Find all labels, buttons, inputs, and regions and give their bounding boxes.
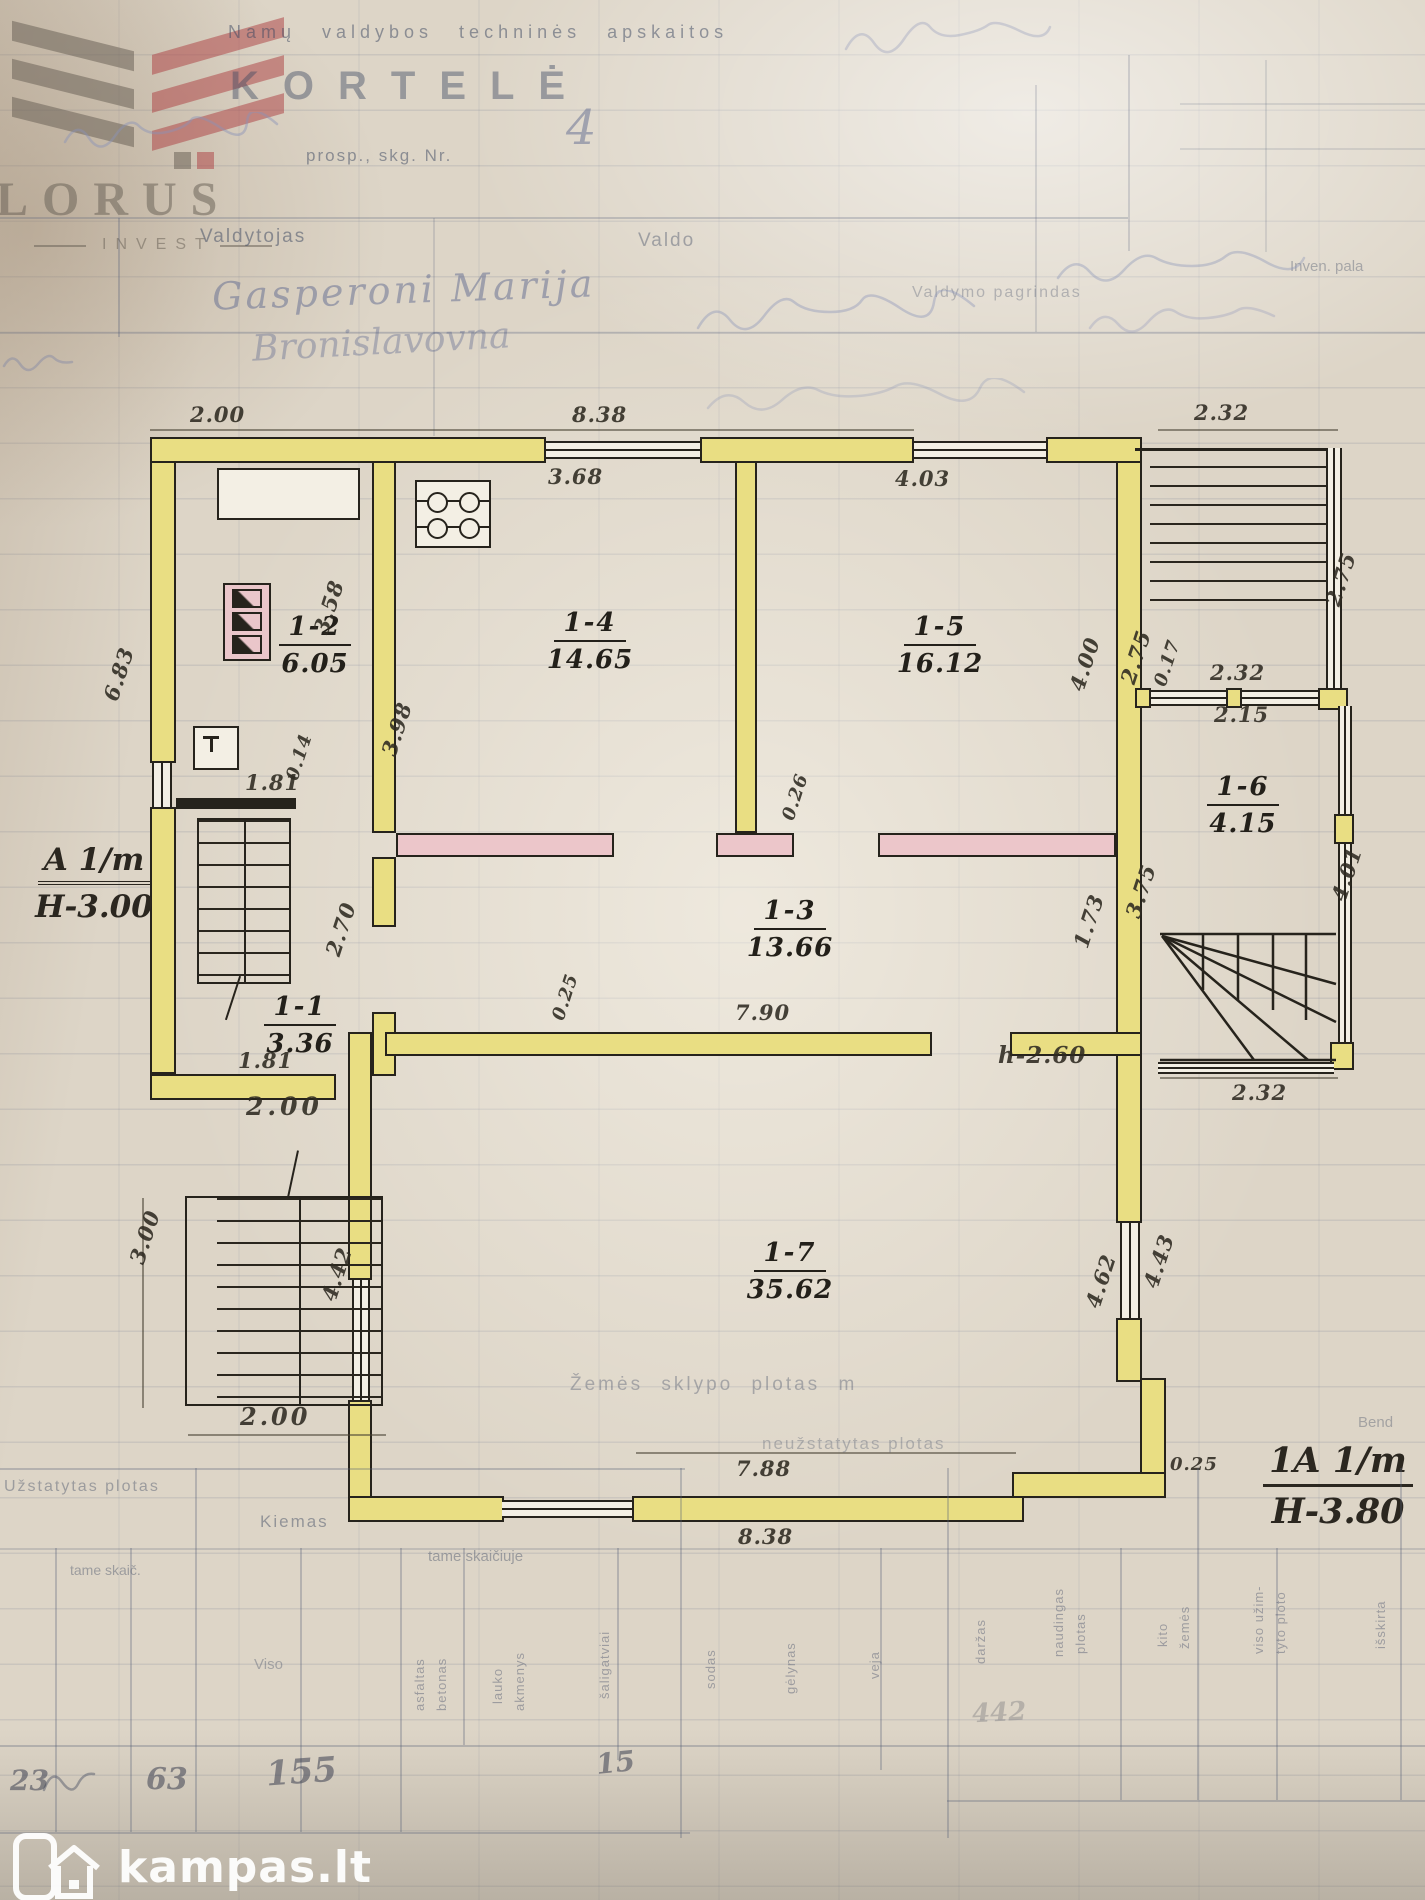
room-area: 6.05 (270, 646, 360, 679)
form-line (433, 218, 435, 436)
wall (1046, 437, 1142, 463)
dim-label: 2.32 (1194, 400, 1249, 425)
room-label-1-6: 1-6 4.15 (1195, 772, 1291, 839)
plot-area-label: Žemės sklypo plotas m (570, 1374, 857, 1396)
tame-skaiciuje-label: tame skaičiuje (428, 1548, 523, 1565)
table-line (680, 1468, 682, 1838)
table-col-label: viso užim- (1251, 1585, 1266, 1654)
room-id: 1-6 (1207, 772, 1280, 806)
form-line (1180, 103, 1425, 105)
table-line (0, 1745, 1425, 1747)
wall (632, 1496, 1024, 1522)
table-line (0, 1468, 685, 1470)
room-label-1-5: 1-5 16.12 (895, 612, 985, 679)
room-id: 1-3 (754, 896, 827, 930)
table-col-label: betonas (434, 1658, 449, 1711)
room-id: 1-7 (754, 1238, 827, 1272)
dim-label: 0.25 (1170, 1454, 1218, 1475)
form-line (1180, 148, 1425, 150)
partition-wall (716, 833, 794, 857)
room-area: 13.66 (740, 930, 840, 963)
dim-label: 6.83 (98, 644, 139, 704)
section-mark-right: 1A 1/m H-3.80 (1258, 1440, 1418, 1532)
dim-label: 2.15 (1214, 702, 1269, 727)
room-label-1-4: 1-4 14.65 (540, 608, 640, 675)
table-col-label: asfaltas (412, 1658, 427, 1711)
stair-divider (244, 820, 246, 982)
dim-label: 2.32 (1232, 1080, 1287, 1105)
room-id: 1-4 (554, 608, 627, 642)
section-mark-left: A 1/m H-3.00 (24, 842, 164, 925)
kampas-logo-text: kampas.lt (118, 1842, 372, 1893)
table-line (1120, 1548, 1122, 1800)
dim-label: 2.00 (246, 1092, 323, 1121)
window (1120, 1223, 1140, 1318)
stove-burner (427, 518, 448, 539)
wall (372, 461, 396, 833)
winder-stairs (1158, 926, 1338, 1066)
scanned-inventory-card: LORUS INVEST Namų valdybos techninės aps… (0, 0, 1425, 1900)
handwriting-scribble (840, 15, 1100, 65)
table-line (1197, 1468, 1199, 1800)
room-area: 14.65 (540, 642, 640, 675)
room-area: 35.62 (740, 1272, 840, 1305)
handwriting-scribble (1050, 248, 1380, 348)
yard-label: Kiemas (260, 1512, 329, 1532)
window (914, 441, 1046, 459)
radiator-symbol (223, 583, 271, 661)
wall (735, 461, 757, 833)
dim-label: 8.38 (572, 402, 627, 427)
table-line (0, 1548, 1425, 1550)
dim-label: 3.00 (124, 1207, 165, 1267)
wall (348, 1496, 504, 1522)
dim-label: 4.00 (1064, 634, 1105, 694)
dash (34, 245, 86, 247)
table-line (55, 1548, 57, 1832)
dim-label: 7.88 (736, 1456, 791, 1481)
room-label-1-3: 1-3 13.66 (740, 896, 840, 963)
table-value: 155 (265, 1750, 339, 1795)
form-line (1265, 60, 1267, 252)
radiator-cell (232, 589, 262, 608)
dim-line (188, 1434, 386, 1436)
partition-wall (396, 833, 614, 857)
wall (1012, 1472, 1166, 1498)
table-value: 442 (971, 1697, 1027, 1730)
stove-burner (427, 492, 448, 513)
porch-edge (1135, 448, 1342, 451)
table-value: 63 (146, 1762, 188, 1797)
wall (700, 437, 914, 463)
table-col-label: plotas (1073, 1613, 1088, 1654)
table-line (463, 1548, 465, 1745)
table-line (617, 1548, 619, 1760)
window (152, 763, 172, 807)
exterior-stairs (1150, 466, 1326, 618)
window (502, 1500, 632, 1518)
table-col-label: kito (1155, 1623, 1170, 1647)
window (546, 441, 700, 459)
dim-label: 0.26 (778, 771, 813, 823)
form-line (1035, 85, 1037, 332)
table-col-label: daržas (973, 1619, 988, 1664)
dim-label: 0.25 (548, 971, 583, 1023)
dim-label: 0.17 (1150, 637, 1185, 689)
table-col-label: išskirta (1373, 1601, 1388, 1649)
table-line (400, 1548, 402, 1832)
table-col-label: akmenys (512, 1652, 527, 1711)
dim-label: 4.62 (1080, 1251, 1121, 1311)
stove-symbol (415, 480, 491, 548)
wall (385, 1032, 932, 1056)
table-value: 23 (10, 1764, 49, 1797)
stove-burner (459, 492, 480, 513)
room-label-1-7: 1-7 35.62 (740, 1238, 840, 1305)
room-area: 16.12 (895, 646, 985, 679)
column-header-valdytojas: Valdytojas (200, 226, 306, 248)
handwriting-scribble (690, 290, 1030, 345)
address-line: prosp., skg. Nr. (306, 146, 452, 166)
t-mark (210, 736, 213, 752)
form-dept-line: Namų valdybos techninės apskaitos (228, 22, 728, 43)
terrace-stairs (185, 1196, 383, 1406)
wall (150, 461, 176, 763)
table-line (195, 1468, 197, 1832)
wall (1116, 1318, 1142, 1382)
wall (372, 857, 396, 927)
handwriting-scribble (700, 378, 1120, 424)
room-area: 4.15 (1195, 806, 1291, 839)
dim-label: 2.00 (240, 1402, 310, 1431)
column-header-valdo: Valdo (638, 230, 695, 252)
wall (1140, 1378, 1166, 1478)
table-line (1400, 1468, 1402, 1800)
room-id: 1-1 (264, 992, 337, 1026)
wall (176, 798, 296, 809)
dim-label: 7.90 (735, 1000, 790, 1025)
door-height-note: h-2.60 (998, 1042, 1086, 1069)
dim-label: 2.32 (1210, 660, 1265, 685)
radiator-cell (232, 612, 262, 631)
unbuilt-area-label: neužstatytas plotas (762, 1434, 946, 1454)
form-line (1128, 55, 1130, 251)
bendras-label: Bend (1358, 1414, 1393, 1431)
table-line (130, 1548, 132, 1832)
table-col-label: tyto ploto (1273, 1591, 1288, 1654)
stair-divider (299, 1198, 301, 1404)
dim-label: 0.14 (282, 731, 317, 783)
handwritten-patronymic: Bronislavovna (251, 315, 511, 369)
dim-line (150, 429, 374, 431)
table-col-label: gėlynas (783, 1642, 798, 1694)
wall (150, 437, 546, 463)
handwriting-scribble (60, 112, 310, 156)
wall (1116, 461, 1142, 1223)
dim-label: 1.81 (238, 1048, 293, 1073)
viso-label: Viso (254, 1656, 283, 1673)
stove-burner (459, 518, 480, 539)
form-title: KORTELĖ (230, 64, 589, 109)
table-line (947, 1800, 1425, 1802)
dim-label: 2.00 (190, 402, 245, 427)
entry-step-symbol (193, 726, 239, 770)
handwriting-scribble (0, 348, 90, 376)
table-col-label: šaligatviai (597, 1631, 612, 1699)
closet-symbol (217, 468, 360, 520)
stair-arrow (287, 1150, 299, 1197)
table-value: 15 (594, 1744, 636, 1781)
dim-label: 2.70 (320, 899, 361, 959)
kampas-logo: kampas.lt (12, 1832, 372, 1900)
handwritten-address-no: 4 (566, 100, 597, 156)
dim-line (374, 429, 914, 431)
section-label: 1A 1/m (1263, 1440, 1413, 1487)
form-line (118, 218, 120, 337)
room-id: 1-5 (904, 612, 977, 646)
kampas-logo-icon (12, 1832, 104, 1900)
dim-label: 1.73 (1068, 891, 1109, 951)
partition-wall (878, 833, 1116, 857)
dim-label: 4.01 (1326, 844, 1367, 904)
built-area-label: Užstatytas plotas (4, 1478, 160, 1496)
section-height: H-3.80 (1258, 1487, 1418, 1532)
dim-line (1160, 1077, 1338, 1079)
dim-label: 8.38 (738, 1524, 793, 1549)
dim-label: 4.03 (895, 466, 950, 491)
table-col-label: lauko (490, 1668, 505, 1704)
table-col-label: naudingas (1051, 1588, 1066, 1657)
radiator-cell (232, 635, 262, 654)
section-label: A 1/m (38, 842, 151, 885)
table-line (947, 1468, 949, 1838)
section-height: H-3.00 (24, 885, 164, 925)
wall-post (1334, 814, 1354, 844)
wall-post (1135, 688, 1151, 708)
dim-line (1158, 429, 1338, 431)
dim-label: 3.68 (548, 464, 603, 489)
form-line (0, 217, 1128, 219)
table-col-label: sodas (703, 1649, 718, 1689)
dim-label: 4.43 (1138, 1231, 1179, 1291)
table-col-label: veja (867, 1651, 882, 1679)
table-line (1276, 1548, 1278, 1800)
table-col-label: žemės (1177, 1606, 1192, 1649)
